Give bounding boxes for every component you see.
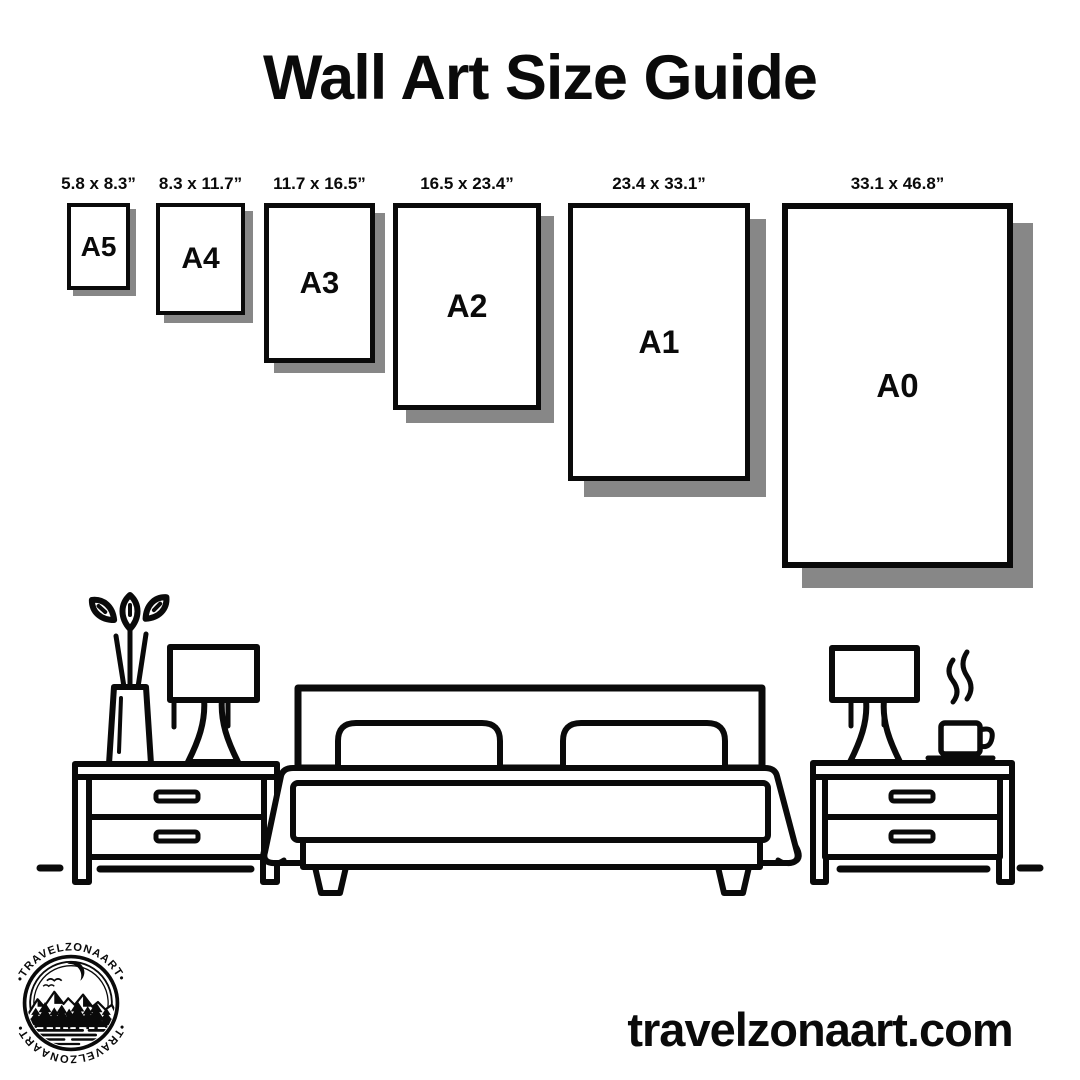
nightstand-left-icon [75,764,277,882]
dimension-label-a5: 5.8 x 8.3” [47,172,150,196]
size-box-a5: A5 [67,203,130,290]
size-code-a4: A4 [181,242,219,276]
size-code-a2: A2 [447,288,488,325]
size-box-a0: A0 [782,203,1013,568]
size-box-a1: A1 [568,203,750,481]
website-url: travelzonaart.com [560,1002,1080,1057]
page-title: Wall Art Size Guide [0,42,1080,114]
table-lamp-left-icon [170,647,257,762]
nightstand-right-icon [813,763,1012,882]
double-bed-icon [263,688,800,893]
bedroom-illustration [0,580,1080,900]
size-box-a4: A4 [156,203,245,315]
size-code-a0: A0 [876,367,918,405]
size-box-a2: A2 [393,203,541,410]
logo-badge: •TRAVELZONAART• •TRAVELZONAART• [6,934,136,1072]
size-code-a5: A5 [81,231,117,263]
size-box-a3: A3 [264,203,375,363]
table-lamp-right-icon [832,648,917,762]
coffee-cup-icon [928,652,993,758]
size-code-a3: A3 [300,265,340,301]
dimension-label-a1: 23.4 x 33.1” [548,172,770,196]
size-code-a1: A1 [639,324,680,361]
dimension-label-a2: 16.5 x 23.4” [373,172,561,196]
size-guide-poster: Wall Art Size Guide 5.8 x 8.3” 8.3 x 11.… [0,0,1080,1080]
dimension-label-a0: 33.1 x 46.8” [762,172,1033,196]
plant-vase-icon [87,593,171,764]
